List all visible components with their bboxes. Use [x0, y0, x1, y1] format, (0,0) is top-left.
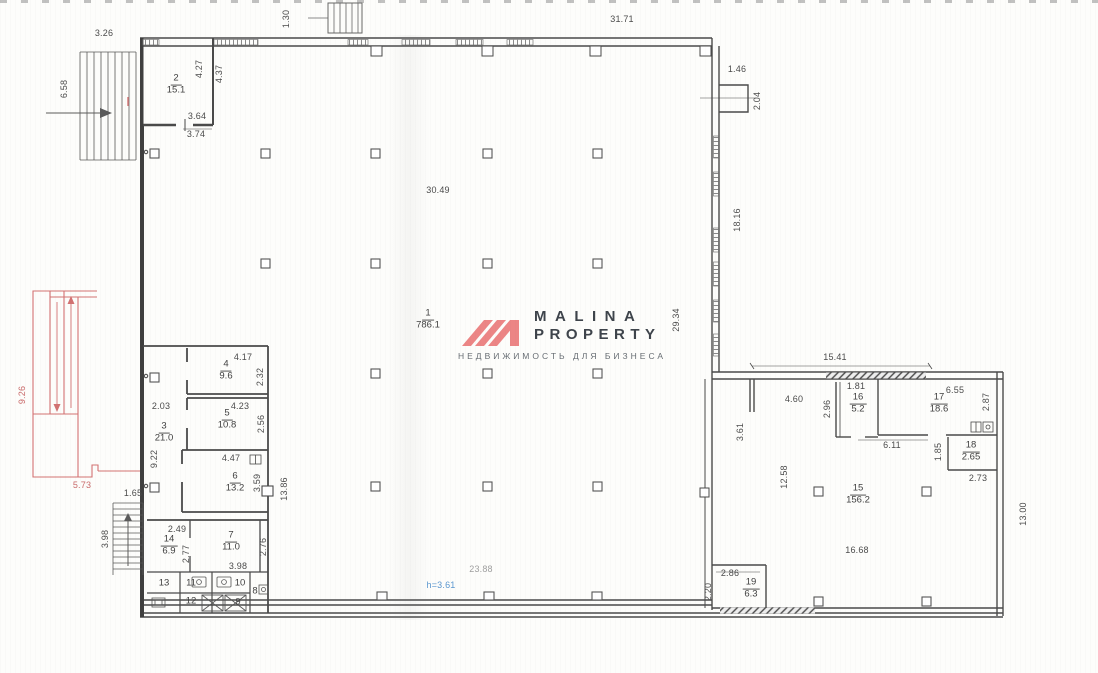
room-number-label: 12 [186, 596, 197, 607]
dimension-label: 13.00 [1018, 502, 1028, 526]
dimension-label: 3.64 [188, 111, 206, 121]
dimension-label: 6.11 [883, 440, 901, 450]
room-label: 215.1 [167, 74, 186, 97]
dimension-label: 3.59 [252, 474, 262, 492]
dimension-label: 9.26 [17, 386, 27, 404]
room-label: 196.3 [743, 578, 760, 601]
dimension-label: 2.73 [969, 473, 987, 483]
dimension-label: 4.27 [194, 60, 204, 78]
dimension-label: 1.81 [847, 381, 865, 391]
room-label: 1718.6 [930, 393, 949, 416]
room-number-label: 13 [159, 578, 170, 589]
dimension-label: 1.85 [933, 443, 943, 461]
dimension-label: 12.58 [779, 465, 789, 489]
dimension-label: 1.30 [281, 10, 291, 28]
dimension-label: 6.58 [59, 80, 69, 98]
fire-escape [33, 97, 140, 477]
dimension-label: 23.88 [469, 564, 493, 574]
dimension-label: 2.86 [721, 568, 739, 578]
bottom-left-stair [113, 503, 143, 575]
dimension-label: 5.73 [73, 480, 91, 490]
dimension-label: 2.49 [168, 524, 186, 534]
dimension-label: 2.03 [152, 401, 170, 411]
dimension-label: 3.61 [735, 423, 745, 441]
room-label: 49.6 [219, 360, 232, 383]
room-label: 165.2 [850, 393, 867, 416]
dimension-label: 15.41 [823, 352, 847, 362]
dimension-label: 30.49 [426, 185, 450, 195]
dimension-label: 6.55 [946, 385, 964, 395]
room-label: 613.2 [226, 472, 245, 495]
room-number-label: 9 [235, 597, 240, 608]
dimension-label: 1.46 [728, 64, 746, 74]
dimension-label: h=3.61 [427, 580, 456, 590]
dimension-label: 29.34 [671, 308, 681, 332]
dimension-label: 2.04 [752, 92, 762, 110]
logo-tagline: НЕДВИЖИМОСТЬ ДЛЯ БИЗНЕСА [458, 351, 666, 361]
room-label: 146.9 [161, 535, 178, 558]
dimension-label: 1.65 [124, 488, 142, 498]
watermark-logo: MALINA PROPERTY НЕДВИЖИМОСТЬ ДЛЯ БИЗНЕСА [458, 306, 658, 364]
room-number-label: 11 [186, 578, 196, 589]
dimension-label: 3.74 [187, 129, 205, 139]
sanitary-fixture-icons [152, 577, 268, 611]
room-number-label: 10 [235, 578, 246, 589]
floorplan-canvas: MALINA PROPERTY НЕДВИЖИМОСТЬ ДЛЯ БИЗНЕСА… [0, 0, 1098, 673]
dimension-label: 2.77 [181, 545, 191, 563]
room-label: 1786.1 [416, 309, 440, 332]
dimension-label: 3.98 [100, 530, 110, 548]
dimension-label: 16.68 [845, 545, 869, 555]
dimension-label: 9.22 [149, 450, 159, 468]
room-label: 510.8 [218, 409, 237, 432]
dimension-label: 4.60 [785, 394, 803, 404]
dimension-label: 4.17 [234, 352, 252, 362]
dimension-label: 2.76 [258, 538, 268, 556]
dimension-label: 4.47 [222, 453, 240, 463]
logo-line2: PROPERTY [534, 326, 661, 345]
dimension-label: 3.26 [95, 28, 113, 38]
left-exterior-stair [46, 52, 136, 160]
room-number-label: 8 [252, 586, 257, 597]
dimension-label: 13.86 [279, 477, 289, 501]
top-stair [308, 3, 362, 33]
dimension-label: 2.56 [256, 415, 266, 433]
dimension-label: 4.37 [214, 65, 224, 83]
dimension-label: 18.16 [732, 208, 742, 232]
room-label: 15156.2 [846, 484, 870, 507]
dimension-label: 3.98 [229, 561, 247, 571]
dimension-label: 2.87 [981, 393, 991, 411]
room-label: 711.0 [222, 531, 240, 554]
logo-text: MALINA PROPERTY [534, 308, 661, 345]
dimension-label: 2.20 [703, 583, 713, 601]
dimension-label: 2.32 [255, 368, 265, 386]
room-label: 321.0 [155, 422, 174, 445]
logo-line1: MALINA [534, 308, 661, 326]
dimension-label: 2.96 [822, 400, 832, 418]
room-label: 182.65 [962, 441, 981, 464]
logo-mark [462, 310, 534, 350]
dimension-label: 31.71 [610, 14, 634, 24]
